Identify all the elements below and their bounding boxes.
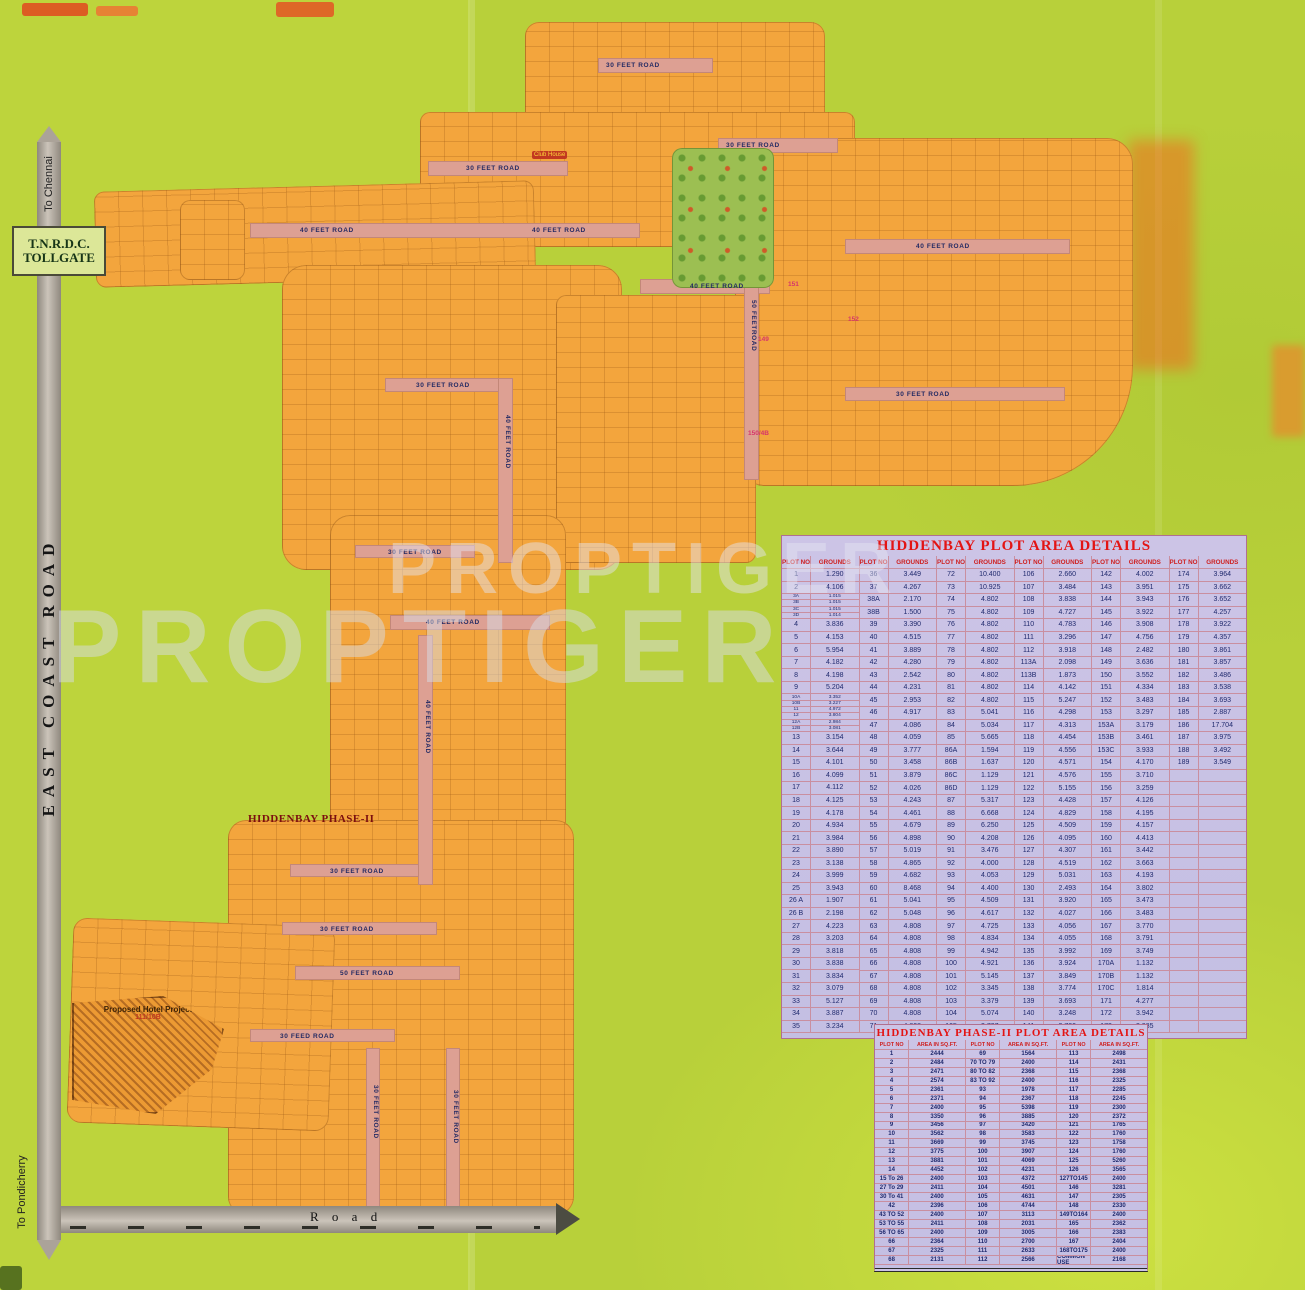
table-row: 1225.155 bbox=[1015, 782, 1092, 795]
column-header: PLOT NO bbox=[1057, 1040, 1091, 1049]
plot-no-cell: 17 bbox=[782, 782, 811, 794]
plot-no-cell: 43 TO 52 bbox=[875, 1211, 909, 1219]
area-value-cell: 3.922 bbox=[1199, 619, 1246, 631]
plot-no-cell: 3D bbox=[782, 613, 811, 618]
plot-no-cell: 50 bbox=[860, 757, 889, 769]
plot-no-cell: 186 bbox=[1170, 720, 1199, 732]
plot-no-cell: 10B bbox=[782, 701, 811, 706]
plot-no-cell: 88 bbox=[937, 807, 966, 819]
area-value-cell: 2367 bbox=[1000, 1095, 1056, 1103]
plot-no-cell: 93 bbox=[966, 1086, 1000, 1094]
road-center-dashes bbox=[70, 1226, 540, 1229]
table-row bbox=[1170, 858, 1247, 871]
plot-no-cell: 129 bbox=[1015, 870, 1044, 882]
plot-no-cell: 3 bbox=[875, 1068, 909, 1076]
plot-no-cell: 51 bbox=[860, 770, 889, 782]
plot-no-cell: 82 bbox=[937, 694, 966, 706]
road-label: 40 FEET ROAD bbox=[916, 243, 970, 250]
plot-no-cell: 102 bbox=[966, 1166, 1000, 1174]
road-label: 30 FEET ROAD bbox=[388, 549, 442, 556]
table-row: 896.250 bbox=[937, 820, 1014, 833]
area-value-cell: 4501 bbox=[1000, 1184, 1056, 1192]
table-row: 1363.924 bbox=[1015, 958, 1092, 971]
table-row bbox=[1170, 895, 1247, 908]
area-value-cell: 4.576 bbox=[1044, 770, 1091, 782]
plot-no-cell: 126 bbox=[1057, 1166, 1091, 1174]
area-value-cell bbox=[1199, 832, 1246, 844]
plot-no-cell: 26 B bbox=[782, 908, 811, 920]
table-row: 684.808 bbox=[860, 983, 937, 996]
plot-no-cell: 134 bbox=[1015, 933, 1044, 945]
table-row: 32471 bbox=[875, 1068, 965, 1077]
plot-no-cell: 103 bbox=[966, 1175, 1000, 1183]
area-value-cell: 3.849 bbox=[1044, 971, 1091, 983]
plot-no-cell: 58 bbox=[860, 858, 889, 870]
table-row: 404.515 bbox=[860, 632, 937, 645]
table-row: 984.834 bbox=[937, 933, 1014, 946]
table-row: 994.942 bbox=[937, 945, 1014, 958]
column-header: PLOT NO bbox=[1015, 556, 1044, 568]
table-row: 1214.576 bbox=[1015, 770, 1092, 783]
plot-no-cell: 10 bbox=[875, 1130, 909, 1138]
area-value-cell: 4.101 bbox=[811, 757, 858, 769]
plot-no-cell: 75 bbox=[937, 607, 966, 619]
area-value-cell: 3.248 bbox=[1044, 1008, 1091, 1020]
table-row: 845.034 bbox=[937, 720, 1014, 733]
table-row: 303.838 bbox=[782, 958, 859, 971]
plot-no-cell bbox=[1170, 1021, 1199, 1033]
table-row: 1044501 bbox=[966, 1184, 1056, 1193]
table-row: 86A1.594 bbox=[937, 745, 1014, 758]
plot-no-cell: 167 bbox=[1057, 1238, 1091, 1246]
table-row: 1255260 bbox=[1057, 1157, 1147, 1166]
column-header: AREA IN SQ.FT. bbox=[1000, 1040, 1056, 1049]
area-value-cell: 1758 bbox=[1091, 1139, 1147, 1147]
area-value-cell: 4.357 bbox=[1199, 632, 1246, 644]
area-value-cell: 5.041 bbox=[966, 707, 1013, 719]
plot-no-cell: 143 bbox=[1092, 582, 1121, 594]
table-row: 1211765 bbox=[1057, 1122, 1147, 1131]
area-value-cell: 4.802 bbox=[966, 669, 1013, 681]
plot-no-cell: 168 bbox=[1092, 933, 1121, 945]
table-header-row: PLOT NOGROUNDS bbox=[1015, 556, 1092, 569]
table-row: 1122566 bbox=[966, 1256, 1056, 1265]
table-row: 594.682 bbox=[860, 870, 937, 883]
area-value-cell: 5.074 bbox=[966, 1008, 1013, 1020]
area-value-cell bbox=[1199, 1008, 1246, 1020]
plot-no-cell: 135 bbox=[1015, 945, 1044, 957]
area-value-cell: 3.483 bbox=[1121, 908, 1168, 920]
table-row: 931978 bbox=[966, 1086, 1056, 1095]
table-row: 503.458 bbox=[860, 757, 937, 770]
plot-no-cell bbox=[1170, 807, 1199, 819]
table-row: 664.808 bbox=[860, 958, 937, 971]
plot-no-cell: 142 bbox=[1092, 569, 1121, 581]
table-column-group: PLOT NOAREA IN SQ.FT.1244422484324714257… bbox=[875, 1040, 965, 1265]
table-row: 86B1.637 bbox=[937, 757, 1014, 770]
area-value-cell: 3.449 bbox=[889, 569, 936, 581]
survey-number-label: 149 bbox=[758, 336, 769, 343]
table-row: 1843.693 bbox=[1170, 694, 1247, 707]
area-value-cell: 3.992 bbox=[1044, 945, 1091, 957]
plot-no-cell: 18 bbox=[782, 795, 811, 807]
table-row: 1155.247 bbox=[1015, 694, 1092, 707]
plot-no-cell bbox=[1170, 795, 1199, 807]
plot-no-cell bbox=[1170, 820, 1199, 832]
area-value-cell: 3.975 bbox=[1199, 732, 1246, 744]
plot-no-cell: 114 bbox=[1057, 1059, 1091, 1067]
table-row bbox=[1170, 795, 1247, 808]
area-value-cell: 2574 bbox=[909, 1077, 965, 1085]
plot-no-cell: 26 A bbox=[782, 895, 811, 907]
plot-no-cell: 70 TO 79 bbox=[966, 1059, 1000, 1067]
table-row: 133.154 bbox=[782, 732, 859, 745]
table-row: 393.390 bbox=[860, 619, 937, 632]
bottom-road-label: R o a d bbox=[310, 1209, 382, 1225]
area-value-cell: 17.704 bbox=[1199, 720, 1246, 732]
table-row: 1014069 bbox=[966, 1157, 1056, 1166]
plot-no-cell: 112 bbox=[1015, 644, 1044, 656]
table-row: 1463281 bbox=[1057, 1184, 1147, 1193]
plot-no-cell: 4 bbox=[875, 1077, 909, 1085]
plot-no-cell: 14 bbox=[875, 1166, 909, 1174]
table-row: 335.127 bbox=[782, 996, 859, 1009]
table-row: 1643.802 bbox=[1092, 883, 1169, 896]
area-value-cell: 3.458 bbox=[889, 757, 936, 769]
table-row: 27 To 292411 bbox=[875, 1184, 965, 1193]
area-value-cell: 3.379 bbox=[966, 996, 1013, 1008]
table-row: 30 To 412400 bbox=[875, 1193, 965, 1202]
area-value-cell: 2.542 bbox=[889, 669, 936, 681]
area-value-cell: 4.413 bbox=[1121, 832, 1168, 844]
plot-no-cell: 1 bbox=[782, 569, 811, 581]
area-value-cell: 4.257 bbox=[1199, 607, 1246, 619]
table-row: 1584.195 bbox=[1092, 807, 1169, 820]
table-row: 1663.483 bbox=[1092, 908, 1169, 921]
table-row: 955398 bbox=[966, 1104, 1056, 1113]
area-value-cell: 2362 bbox=[1091, 1220, 1147, 1228]
table-row: 1563.259 bbox=[1092, 782, 1169, 795]
area-value-cell bbox=[1199, 807, 1246, 819]
table-row: 1683.791 bbox=[1092, 933, 1169, 946]
area-value-cell: 2361 bbox=[909, 1086, 965, 1094]
table-header-row: PLOT NOAREA IN SQ.FT. bbox=[966, 1040, 1056, 1050]
plot-no-cell: 12 bbox=[782, 713, 811, 718]
table-row: 1783.922 bbox=[1170, 619, 1247, 632]
road-label: 30 FEET ROAD bbox=[466, 165, 520, 172]
scan-artifact bbox=[276, 2, 334, 17]
table-row: 274.223 bbox=[782, 920, 859, 933]
table-row: 1544.170 bbox=[1092, 757, 1169, 770]
area-value-cell: 1.132 bbox=[1121, 958, 1168, 970]
table-row bbox=[1170, 971, 1247, 984]
area-value-cell: 3907 bbox=[1000, 1148, 1056, 1156]
plot-no-cell bbox=[1170, 920, 1199, 932]
table-row: 283.203 bbox=[782, 933, 859, 946]
area-value-cell: 3.390 bbox=[889, 619, 936, 631]
table-column-group: PLOT NOGROUNDS7210.4007310.925744.802754… bbox=[936, 556, 1014, 1033]
plot-no-cell: 45 bbox=[860, 694, 889, 706]
plot-no-cell: 70 bbox=[860, 1008, 889, 1020]
plot-no-cell: 108 bbox=[966, 1220, 1000, 1228]
area-value-cell: 2498 bbox=[1091, 1050, 1147, 1058]
plot-no-cell: 3C bbox=[782, 607, 811, 612]
area-value-cell: 4.198 bbox=[811, 669, 858, 681]
plot-no-cell: 110 bbox=[966, 1238, 1000, 1246]
area-value-cell: 4.307 bbox=[1044, 845, 1091, 857]
table-row: 942367 bbox=[966, 1095, 1056, 1104]
scan-artifact bbox=[1128, 140, 1194, 370]
area-value-cell: 4231 bbox=[1000, 1166, 1056, 1174]
table-row: 672325 bbox=[875, 1247, 965, 1256]
table-row: 113669 bbox=[875, 1139, 965, 1148]
plot-no-cell bbox=[1170, 996, 1199, 1008]
table-row: 113B1.873 bbox=[1015, 669, 1092, 682]
table-row: 1673.770 bbox=[1092, 920, 1169, 933]
road-label: 40 FEET ROAD bbox=[424, 700, 431, 754]
table-row: 243.999 bbox=[782, 870, 859, 883]
table-row: 704.808 bbox=[860, 1008, 937, 1021]
plot-no-cell: 116 bbox=[1015, 707, 1044, 719]
plot-no-cell: 61 bbox=[860, 895, 889, 907]
tollgate-line2: TOLLGATE bbox=[14, 251, 104, 265]
table-row: 56 TO 652400 bbox=[875, 1229, 965, 1238]
plot-no-cell: 184 bbox=[1170, 694, 1199, 706]
plot-no-cell: 94 bbox=[937, 883, 966, 895]
table-row: 644.808 bbox=[860, 933, 937, 946]
plot-no-cell: 175 bbox=[1170, 582, 1199, 594]
plot-no-cell: 122 bbox=[1015, 782, 1044, 794]
area-value-cell: 4.898 bbox=[889, 832, 936, 844]
plot-no-cell: 86A bbox=[937, 745, 966, 757]
table-row: 1082031 bbox=[966, 1220, 1056, 1229]
survey-number-label: 152 bbox=[848, 316, 859, 323]
table-row: 123775 bbox=[875, 1148, 965, 1157]
area-value-cell: 6.668 bbox=[966, 807, 1013, 819]
area-value-cell bbox=[1199, 858, 1246, 870]
plot-no-cell: 56 bbox=[860, 832, 889, 844]
table-row: 944.400 bbox=[937, 883, 1014, 896]
table-row: 223.890 bbox=[782, 845, 859, 858]
area-value-cell: 4.917 bbox=[889, 707, 936, 719]
area-value-cell: 3.889 bbox=[889, 644, 936, 656]
table-row: 1833.538 bbox=[1170, 682, 1247, 695]
area-value-cell: 2325 bbox=[1091, 1077, 1147, 1085]
area-value-cell: 1.873 bbox=[1044, 669, 1091, 681]
plot-no-cell: 2 bbox=[875, 1059, 909, 1067]
area-value-cell: 3.442 bbox=[1121, 845, 1168, 857]
area-value-cell: 3.693 bbox=[1199, 694, 1246, 706]
road-label: 30 FEET ROAD bbox=[896, 391, 950, 398]
table-row: 1064744 bbox=[966, 1202, 1056, 1211]
area-value-cell: 4.142 bbox=[1044, 682, 1091, 694]
plot-no-cell: 113B bbox=[1015, 669, 1044, 681]
plot-no-cell: 119 bbox=[1057, 1104, 1091, 1112]
area-value-cell: 2031 bbox=[1000, 1220, 1056, 1228]
plot-no-cell: 95 bbox=[937, 895, 966, 907]
plot-no-cell: 5 bbox=[875, 1086, 909, 1094]
plot-no-cell: 76 bbox=[937, 619, 966, 631]
table2-title: HIDDENBAY PHASE-II PLOT AREA DETAILS bbox=[875, 1025, 1147, 1040]
area-value-cell: 3.942 bbox=[1121, 1008, 1168, 1020]
table-row: 15 To 262400 bbox=[875, 1175, 965, 1184]
area-value-cell: 3583 bbox=[1000, 1130, 1056, 1138]
plot-no-cell: 9 bbox=[782, 682, 811, 694]
plot-no-cell: 114 bbox=[1015, 682, 1044, 694]
table-row: 413.889 bbox=[860, 644, 937, 657]
plot-no-cell: 67 bbox=[875, 1247, 909, 1255]
plot-no-cell: 57 bbox=[860, 845, 889, 857]
plot-no-cell: 60 bbox=[860, 883, 889, 895]
table-row: 1753.662 bbox=[1170, 582, 1247, 595]
area-value-cell: 4.208 bbox=[966, 832, 1013, 844]
area-value-cell: 4.802 bbox=[966, 644, 1013, 656]
area-value-cell: 4744 bbox=[1000, 1202, 1056, 1210]
area-value-cell: 2.198 bbox=[811, 908, 858, 920]
column-header: GROUNDS bbox=[811, 556, 858, 568]
plot-no-cell: 108 bbox=[1015, 594, 1044, 606]
scan-artifact bbox=[96, 6, 138, 16]
area-value-cell: 2285 bbox=[1091, 1086, 1147, 1094]
plot-no-cell: 138 bbox=[1015, 983, 1044, 995]
area-value-cell: 3.473 bbox=[1121, 895, 1168, 907]
plot-no-cell: 97 bbox=[937, 920, 966, 932]
area-value-cell: 4452 bbox=[909, 1166, 965, 1174]
area-value-cell: 4.313 bbox=[1044, 720, 1091, 732]
plot-no-cell: 83 bbox=[937, 707, 966, 719]
area-value-cell: 4069 bbox=[1000, 1157, 1056, 1165]
plot-no-cell: 15 bbox=[782, 757, 811, 769]
scan-artifact bbox=[0, 1266, 22, 1290]
plot-area-blob bbox=[556, 295, 756, 563]
plot-no-cell: 11 bbox=[782, 707, 811, 712]
table-row: 18617.704 bbox=[1170, 720, 1247, 733]
table-header-row: PLOT NOGROUNDS bbox=[1170, 556, 1247, 569]
table-row: 422396 bbox=[875, 1202, 965, 1211]
table-row: 608.468 bbox=[860, 883, 937, 896]
column-header: PLOT NO bbox=[1170, 556, 1199, 568]
table-row: 1231758 bbox=[1057, 1139, 1147, 1148]
table-row: 1723.942 bbox=[1092, 1008, 1169, 1021]
plot-no-cell: 9 bbox=[875, 1122, 909, 1130]
plot-no-cell: 86D bbox=[937, 782, 966, 794]
road-label: 40 FEET ROAD bbox=[504, 415, 511, 469]
plot-no-cell: 107 bbox=[1015, 582, 1044, 594]
table-row: 84.198 bbox=[782, 669, 859, 682]
table-row: 1174.313 bbox=[1015, 720, 1092, 733]
plot-no-cell: 158 bbox=[1092, 807, 1121, 819]
area-value-cell: 3.461 bbox=[1121, 732, 1168, 744]
plot-no-cell: 161 bbox=[1092, 845, 1121, 857]
plot-no-cell: 168TO175 bbox=[1057, 1247, 1091, 1255]
area-value-cell: 3775 bbox=[909, 1148, 965, 1156]
plot-no-cell: 52 bbox=[860, 782, 889, 794]
area-value-cell: 3.693 bbox=[1044, 996, 1091, 1008]
plot-no-cell: 185 bbox=[1170, 707, 1199, 719]
plot-no-cell: 81 bbox=[937, 682, 966, 694]
table-row: 444.231 bbox=[860, 682, 937, 695]
table-row bbox=[1170, 933, 1247, 946]
table-row: 452.953 bbox=[860, 694, 937, 707]
table-row: 43.836 bbox=[782, 619, 859, 632]
area-value-cell: 4.053 bbox=[966, 870, 1013, 882]
table-header-row: PLOT NOAREA IN SQ.FT. bbox=[875, 1040, 965, 1050]
area-value-cell: 4.157 bbox=[1121, 820, 1168, 832]
plot-no-cell: 172 bbox=[1092, 1008, 1121, 1020]
plot-no-cell: 122 bbox=[1057, 1130, 1091, 1138]
plot-no-cell: 15 To 26 bbox=[875, 1175, 909, 1183]
plot-no-cell: 105 bbox=[966, 1193, 1000, 1201]
area-value-cell: 4.942 bbox=[966, 945, 1013, 957]
table-row: 904.208 bbox=[937, 832, 1014, 845]
plot-no-cell: COMMON USE bbox=[1057, 1256, 1091, 1264]
plot-no-cell: 136 bbox=[1015, 958, 1044, 970]
area-value-cell: 1.637 bbox=[966, 757, 1013, 769]
table-row: 1192300 bbox=[1057, 1104, 1147, 1113]
table-row: 24.106 bbox=[782, 582, 859, 595]
area-value-cell: 5.041 bbox=[889, 895, 936, 907]
plot-no-cell: 125 bbox=[1015, 820, 1044, 832]
plot-no-cell: 165 bbox=[1057, 1220, 1091, 1228]
plot-no-cell: 93 bbox=[937, 870, 966, 882]
table-row: 1803.861 bbox=[1170, 644, 1247, 657]
column-header: GROUNDS bbox=[889, 556, 936, 568]
table-row: 170A1.132 bbox=[1092, 958, 1169, 971]
plot-no-cell: 98 bbox=[966, 1130, 1000, 1138]
plot-no-cell: 182 bbox=[1170, 669, 1199, 681]
table-row: 1184.454 bbox=[1015, 732, 1092, 745]
plot-no-cell: 181 bbox=[1170, 657, 1199, 669]
plot-no-cell: 3A bbox=[782, 594, 811, 599]
plot-no-cell: 144 bbox=[1092, 594, 1121, 606]
plot-no-cell: 95 bbox=[966, 1104, 1000, 1112]
area-value-cell: 5.204 bbox=[811, 682, 858, 694]
park-area bbox=[672, 148, 774, 288]
plot-no-cell: 8 bbox=[875, 1113, 909, 1121]
plot-no-cell: 166 bbox=[1092, 908, 1121, 920]
table-row: 1334.056 bbox=[1015, 920, 1092, 933]
table-row: 1144.142 bbox=[1015, 682, 1092, 695]
table1-title: HIDDENBAY PLOT AREA DETAILS bbox=[782, 536, 1246, 556]
table-row: 153B3.461 bbox=[1092, 732, 1169, 745]
area-value-cell: 2400 bbox=[909, 1175, 965, 1183]
area-value-cell: 2400 bbox=[909, 1211, 965, 1219]
area-value-cell bbox=[1199, 770, 1246, 782]
plot-no-cell: 41 bbox=[860, 644, 889, 656]
road-label: 30 FEET ROAD bbox=[320, 926, 374, 933]
table-row: 1034372 bbox=[966, 1175, 1056, 1184]
plot-no-cell: 127TO145 bbox=[1057, 1175, 1091, 1183]
area-value-cell: 3.081 bbox=[811, 726, 858, 731]
area-value-cell: 3.918 bbox=[1044, 644, 1091, 656]
area-value-cell: 3.943 bbox=[811, 883, 858, 895]
table-row: 1172285 bbox=[1057, 1086, 1147, 1095]
area-value-cell: 3.352 bbox=[811, 694, 858, 699]
plot-no-cell: 21 bbox=[782, 832, 811, 844]
area-value-cell: 4.509 bbox=[1044, 820, 1091, 832]
area-value-cell: 1564 bbox=[1000, 1050, 1056, 1058]
plot-no-cell: 121 bbox=[1015, 770, 1044, 782]
table-row: 1254.509 bbox=[1015, 820, 1092, 833]
table-row: 1493.636 bbox=[1092, 657, 1169, 670]
plot-no-cell: 89 bbox=[937, 820, 966, 832]
table-row: 1313.920 bbox=[1015, 895, 1092, 908]
table-row: 654.808 bbox=[860, 945, 937, 958]
table-row: 1823.486 bbox=[1170, 669, 1247, 682]
table-row: 174.112 bbox=[782, 782, 859, 795]
plot-no-cell: 80 bbox=[937, 669, 966, 681]
table-row: 1152368 bbox=[1057, 1068, 1147, 1077]
